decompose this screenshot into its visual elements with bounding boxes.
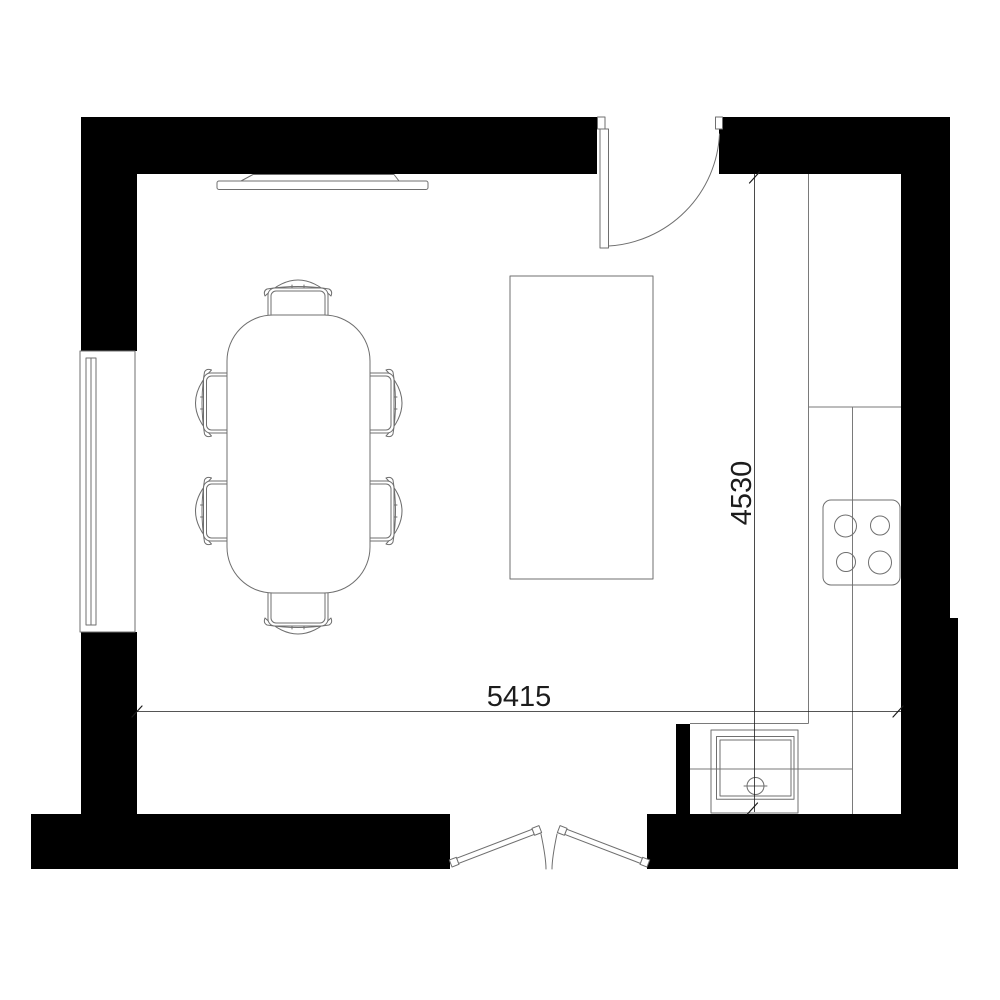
door-stop-right xyxy=(716,117,723,129)
window-frame xyxy=(80,351,135,632)
tv-screen xyxy=(217,181,428,190)
door-leaf xyxy=(600,129,609,248)
door-leaf-left xyxy=(449,826,541,867)
sink-basin-inner xyxy=(720,740,791,796)
dimension-width: 5415 xyxy=(132,681,903,717)
dimension-width-label: 5415 xyxy=(487,681,552,713)
window-left xyxy=(80,351,135,632)
door-swing-arc-left xyxy=(541,834,546,869)
door-swing-arc xyxy=(609,134,720,246)
counter-right xyxy=(690,174,901,814)
floor-plan-drawing: 5415 4530 xyxy=(0,0,1000,1000)
floor-plan-canvas: 5415 4530 xyxy=(0,0,1000,1000)
cooktop xyxy=(823,500,900,585)
dimension-height: 4530 xyxy=(726,172,760,814)
wall-stub-sink xyxy=(676,724,690,814)
swing-door-top-right xyxy=(598,117,723,248)
cooktop-burner xyxy=(869,551,892,574)
wall-mounted-tv xyxy=(217,175,428,190)
cooktop-burner xyxy=(835,515,857,537)
sink-basin-outer xyxy=(717,737,795,800)
wall-bottom-left-segment xyxy=(31,814,450,869)
door-leaf-right xyxy=(557,826,649,867)
exterior-walls xyxy=(31,117,958,869)
wall-top-left-segment xyxy=(81,117,597,174)
door-swing-arc-right xyxy=(552,834,557,869)
wall-left-lower xyxy=(81,632,137,814)
wall-right-upper xyxy=(901,117,950,618)
double-door-bottom xyxy=(449,826,649,869)
wall-left-upper xyxy=(81,117,137,351)
dining-table xyxy=(227,315,370,593)
wall-bottom-right-segment xyxy=(647,814,958,869)
cooktop-burner xyxy=(871,516,890,535)
door-stop-left xyxy=(598,117,606,129)
wall-right-lower xyxy=(901,618,958,814)
cooktop-outline xyxy=(823,500,900,585)
dimension-height-label: 4530 xyxy=(726,461,758,526)
kitchen-island xyxy=(510,276,653,579)
tv-bracket xyxy=(241,175,399,182)
